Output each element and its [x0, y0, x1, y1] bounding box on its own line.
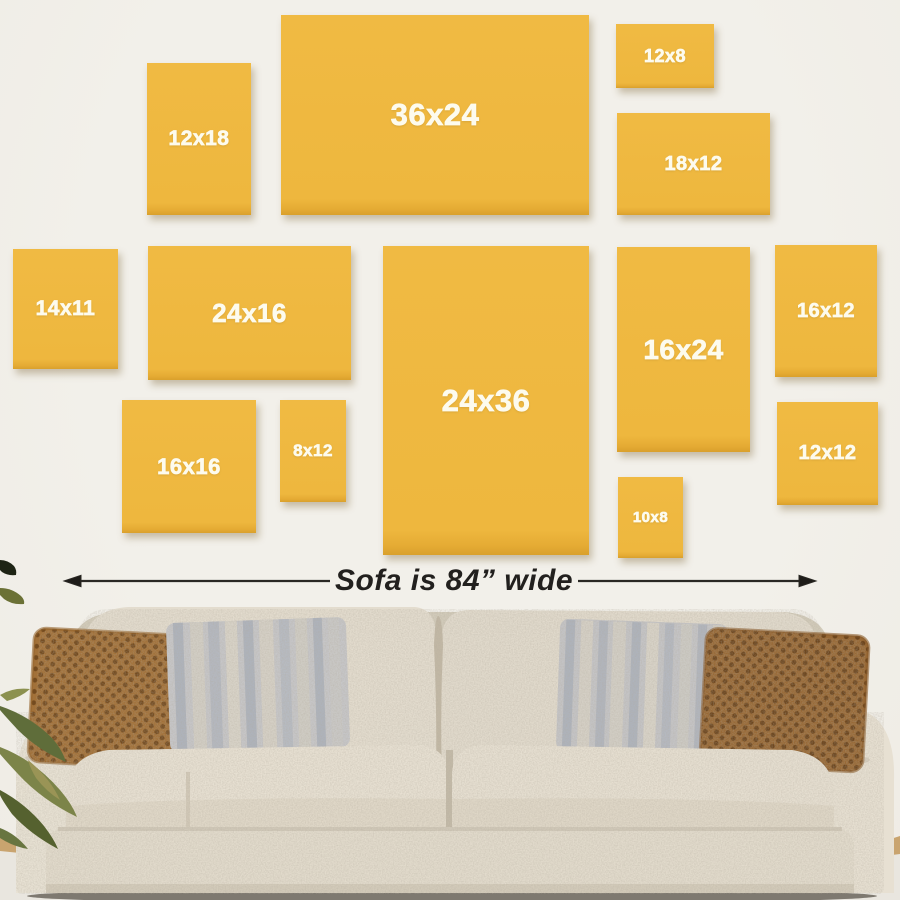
svg-text:Sofa is 84” wide: Sofa is 84” wide [335, 564, 573, 597]
